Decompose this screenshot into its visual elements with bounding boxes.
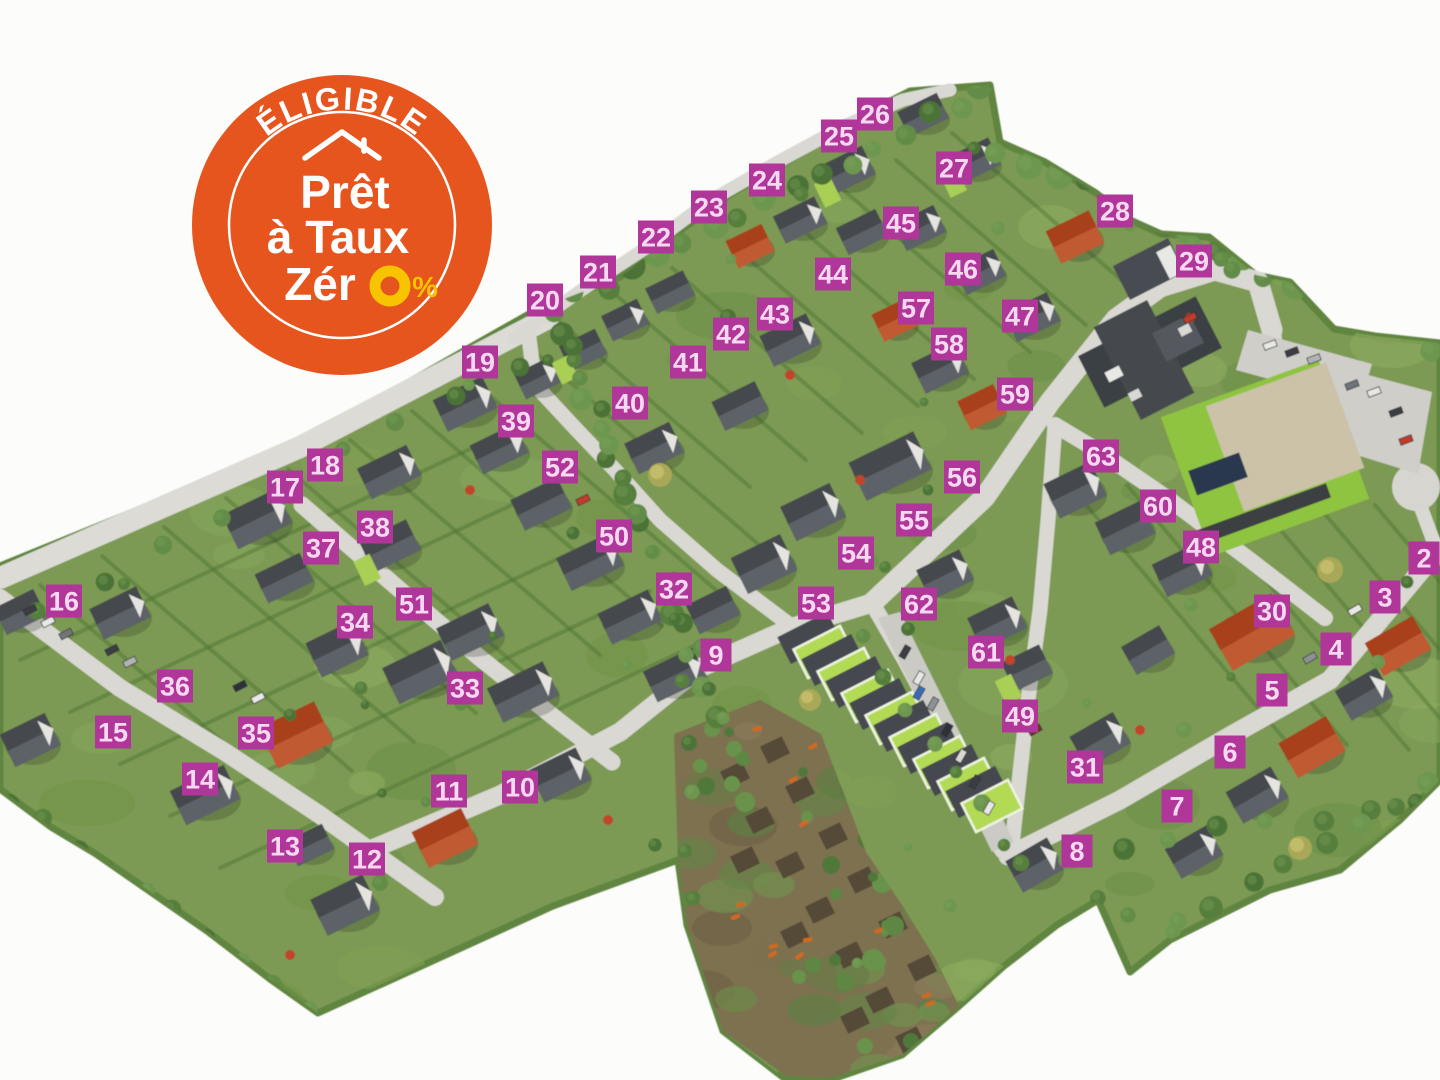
svg-text:48: 48: [1186, 533, 1216, 563]
svg-text:23: 23: [694, 193, 724, 223]
svg-text:56: 56: [947, 463, 977, 493]
svg-text:6: 6: [1222, 738, 1237, 768]
svg-text:39: 39: [501, 407, 531, 437]
svg-text:24: 24: [752, 166, 782, 196]
svg-text:7: 7: [1169, 792, 1184, 822]
svg-text:16: 16: [49, 587, 79, 617]
svg-text:34: 34: [340, 608, 370, 638]
svg-text:19: 19: [465, 348, 495, 378]
svg-text:47: 47: [1005, 302, 1035, 332]
svg-text:%: %: [412, 272, 438, 304]
svg-text:à Taux: à Taux: [267, 211, 410, 263]
svg-text:2: 2: [1416, 544, 1431, 574]
svg-text:41: 41: [673, 348, 703, 378]
svg-text:33: 33: [450, 674, 480, 704]
svg-text:60: 60: [1143, 492, 1173, 522]
svg-text:61: 61: [971, 638, 1001, 668]
svg-text:3: 3: [1377, 583, 1392, 613]
svg-text:27: 27: [939, 154, 969, 184]
svg-text:45: 45: [886, 209, 916, 239]
svg-text:49: 49: [1005, 702, 1035, 732]
svg-text:53: 53: [801, 589, 831, 619]
svg-text:32: 32: [659, 575, 689, 605]
svg-text:38: 38: [360, 513, 390, 543]
svg-text:Zér: Zér: [284, 258, 356, 310]
svg-text:29: 29: [1179, 247, 1209, 277]
svg-text:37: 37: [306, 534, 336, 564]
svg-text:57: 57: [901, 294, 931, 324]
svg-text:8: 8: [1069, 837, 1084, 867]
svg-text:52: 52: [545, 453, 575, 483]
svg-text:5: 5: [1264, 676, 1279, 706]
svg-text:51: 51: [399, 590, 429, 620]
svg-text:18: 18: [310, 451, 340, 481]
svg-text:13: 13: [270, 832, 300, 862]
svg-text:15: 15: [98, 718, 128, 748]
svg-text:20: 20: [530, 286, 560, 316]
svg-text:43: 43: [760, 300, 790, 330]
svg-text:28: 28: [1100, 197, 1130, 227]
svg-text:35: 35: [241, 719, 271, 749]
svg-text:58: 58: [934, 330, 964, 360]
svg-text:31: 31: [1070, 753, 1100, 783]
svg-text:11: 11: [435, 777, 464, 807]
svg-text:44: 44: [818, 260, 848, 290]
svg-text:12: 12: [352, 845, 382, 875]
svg-text:50: 50: [599, 522, 629, 552]
svg-text:55: 55: [899, 506, 929, 536]
svg-text:17: 17: [270, 473, 300, 503]
svg-text:42: 42: [716, 320, 746, 350]
svg-text:59: 59: [1000, 380, 1030, 410]
svg-text:40: 40: [615, 389, 645, 419]
svg-text:4: 4: [1328, 635, 1343, 665]
svg-text:21: 21: [583, 258, 613, 288]
svg-text:62: 62: [904, 590, 934, 620]
svg-text:30: 30: [1257, 597, 1287, 627]
svg-text:22: 22: [641, 223, 671, 253]
svg-text:54: 54: [841, 539, 871, 569]
svg-text:25: 25: [824, 122, 854, 152]
svg-text:63: 63: [1086, 442, 1116, 472]
svg-text:46: 46: [948, 255, 978, 285]
svg-text:14: 14: [185, 765, 215, 795]
svg-text:10: 10: [505, 773, 535, 803]
svg-text:26: 26: [860, 100, 890, 130]
svg-text:9: 9: [708, 641, 723, 671]
svg-text:36: 36: [160, 672, 190, 702]
